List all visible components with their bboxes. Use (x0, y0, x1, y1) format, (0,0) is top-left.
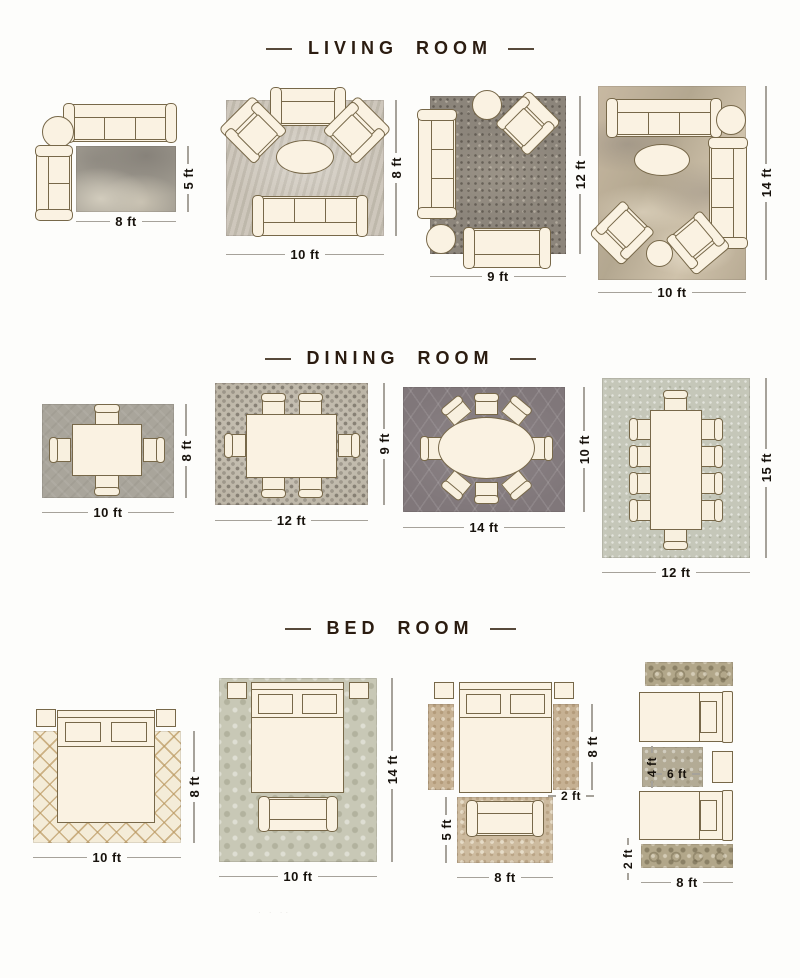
runner-rug-8x2 (553, 704, 579, 790)
dimension-height: 14 ft (384, 678, 400, 862)
three-seat-sofa (607, 99, 721, 137)
twin-bed (639, 791, 732, 840)
dimension-height: 8 ft (178, 404, 194, 498)
dining-chair (299, 397, 322, 415)
dimension-width: 8 ft (457, 871, 553, 884)
oval-coffee-table (634, 144, 690, 176)
dimension-width: 14 ft (403, 521, 565, 534)
dimension-width: 12 ft (602, 566, 750, 579)
round-side-table (472, 90, 502, 120)
dimension-height: 4 ft (644, 746, 660, 788)
section-title-text: DINING ROOM (307, 348, 494, 369)
section-title-dining-room: DINING ROOM (0, 348, 800, 369)
section-title-living-room: LIVING ROOM (0, 38, 800, 59)
round-side-table (716, 105, 746, 135)
dimension-runner-width: 2 ft (548, 790, 594, 802)
oval-coffee-table (276, 140, 334, 174)
round-side-table (42, 116, 74, 148)
loveseat (36, 146, 72, 220)
title-dash-left (285, 628, 311, 630)
watermark-dots: · · ·· (258, 908, 291, 917)
dimension-width: 9 ft (430, 270, 566, 283)
dining-chair (633, 500, 651, 521)
dining-table (72, 424, 142, 476)
dining-table (650, 410, 702, 530)
dining-chair (701, 446, 719, 467)
dimension-width: 10 ft (33, 851, 181, 864)
dining-chair (701, 419, 719, 440)
bedroom-bench (259, 797, 337, 831)
dimension-width: 10 ft (219, 870, 377, 883)
three-seat-sofa (64, 104, 176, 142)
runner-rug-8x2 (428, 704, 454, 790)
dining-chair (701, 500, 719, 521)
dimension-height: 12 ft (572, 96, 588, 254)
dimension-height: 5 ft (180, 146, 196, 212)
nightstand (554, 682, 574, 699)
dimension-width: 6 ft (654, 768, 702, 780)
runner-rug-8x2 (641, 844, 733, 868)
section-title-text: BED ROOM (327, 618, 474, 639)
nightstand (156, 709, 176, 727)
dimension-width: 8 ft (76, 215, 176, 228)
bed (251, 682, 344, 793)
bed (57, 710, 155, 823)
nightstand (712, 751, 733, 783)
dining-chair (262, 476, 285, 494)
dimension-height: 14 ft (758, 86, 774, 280)
dining-chair (53, 438, 71, 462)
bed (459, 682, 552, 793)
section-title-text: LIVING ROOM (308, 38, 492, 59)
dining-chair (475, 482, 498, 500)
dining-chair (143, 438, 161, 462)
runner-rug-8x2 (645, 662, 733, 686)
dining-chair (299, 476, 322, 494)
dining-table (246, 414, 337, 478)
dimension-width: 10 ft (598, 286, 746, 299)
dimension-width: 12 ft (215, 514, 368, 527)
rug-size-guide-infographic: LIVING ROOM 8 ft 5 ft 10 ft 8 ft 9 ft 12… (0, 0, 800, 978)
round-side-table (646, 240, 673, 267)
dimension-width: 10 ft (226, 248, 384, 261)
nightstand (36, 709, 56, 727)
living-area-rug-8x5 (76, 146, 176, 212)
title-dash-right (510, 358, 536, 360)
dining-chair (701, 473, 719, 494)
nightstand (227, 682, 247, 699)
dimension-height: 10 ft (576, 387, 592, 512)
dimension-runner-width: 2 ft (620, 838, 636, 874)
section-title-bed-room: BED ROOM (0, 618, 800, 639)
dining-chair (262, 397, 285, 415)
title-dash-right (508, 48, 534, 50)
oval-dining-table (438, 417, 535, 479)
dining-chair (95, 474, 119, 492)
dining-chair (228, 434, 246, 457)
dining-chair (633, 473, 651, 494)
dining-chair (338, 434, 356, 457)
dimension-height: 15 ft (758, 378, 774, 558)
dimension-width: 10 ft (42, 506, 174, 519)
dining-chair (633, 446, 651, 467)
dimension-runner-length: 8 ft (641, 876, 733, 889)
three-seat-sofa (253, 196, 367, 236)
twin-bed (639, 692, 732, 742)
nightstand (434, 682, 454, 699)
title-dash-left (266, 48, 292, 50)
dimension-height: 8 ft (186, 731, 202, 843)
title-dash-right (490, 628, 516, 630)
dimension-height: 8 ft (388, 100, 404, 236)
dimension-height: 5 ft (438, 797, 454, 863)
dining-chair (664, 528, 687, 546)
loveseat (464, 228, 550, 268)
title-dash-left (265, 358, 291, 360)
dining-chair (475, 397, 498, 415)
loveseat (467, 801, 543, 836)
dimension-height: 9 ft (376, 383, 392, 505)
nightstand (349, 682, 369, 699)
dimension-runner-length: 8 ft (584, 704, 600, 790)
dining-chair (633, 419, 651, 440)
round-side-table (426, 224, 456, 254)
three-seat-sofa (418, 110, 456, 218)
